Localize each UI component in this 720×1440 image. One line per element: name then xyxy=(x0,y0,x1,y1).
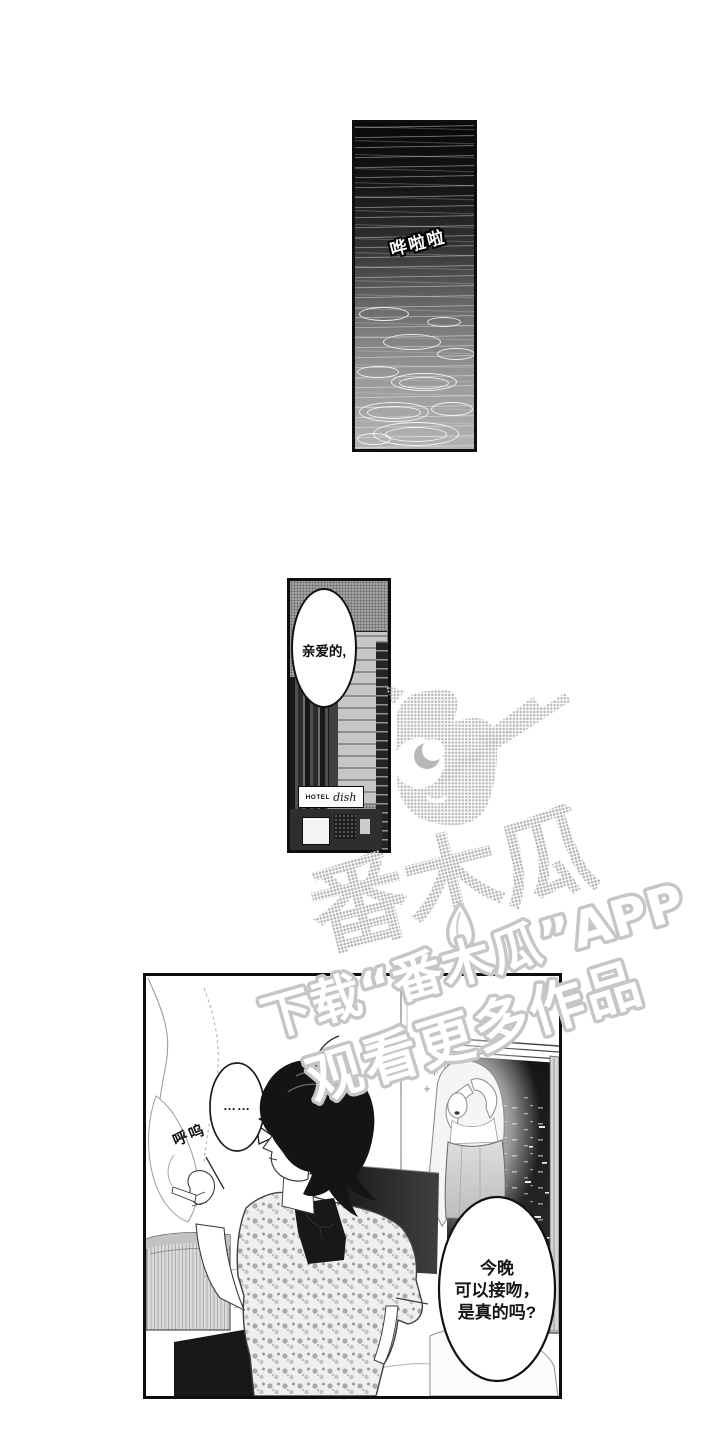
rain-streaks xyxy=(355,123,474,449)
panel-bedroom: …… 呼呜 今晚 可以接吻， 是真的吗? xyxy=(143,973,562,1399)
papaya-mascot-icon xyxy=(383,683,573,843)
entrance-light xyxy=(360,819,370,834)
hotel-sign-name: dish xyxy=(333,792,356,803)
panel-rain: 哗啦啦 xyxy=(352,120,477,452)
speech-bubble-darling: 亲爱的, xyxy=(291,588,357,708)
speech-text-kiss: 今晚 可以接吻， 是真的吗? xyxy=(432,1258,562,1324)
entrance-plant xyxy=(334,814,356,839)
kiss-line-1: 今晚 xyxy=(432,1258,562,1280)
hotel-sign: HOTEL dish xyxy=(298,786,364,808)
kiss-line-3: 是真的吗? xyxy=(432,1302,562,1324)
speech-text-ellipsis: …… xyxy=(210,1098,264,1113)
manga-page: 哗啦啦 HOTEL dish 亲爱的, xyxy=(0,0,720,1440)
kiss-line-2: 可以接吻， xyxy=(432,1280,562,1302)
speech-text-darling: 亲爱的, xyxy=(293,640,355,660)
hotel-entrance xyxy=(290,809,382,850)
panel-hotel: HOTEL dish 亲爱的, xyxy=(287,578,391,853)
hotel-sign-word: HOTEL xyxy=(306,794,331,801)
entrance-door xyxy=(302,817,330,845)
bedroom-artwork xyxy=(146,976,559,1396)
papaya-seed-icon xyxy=(441,900,479,954)
